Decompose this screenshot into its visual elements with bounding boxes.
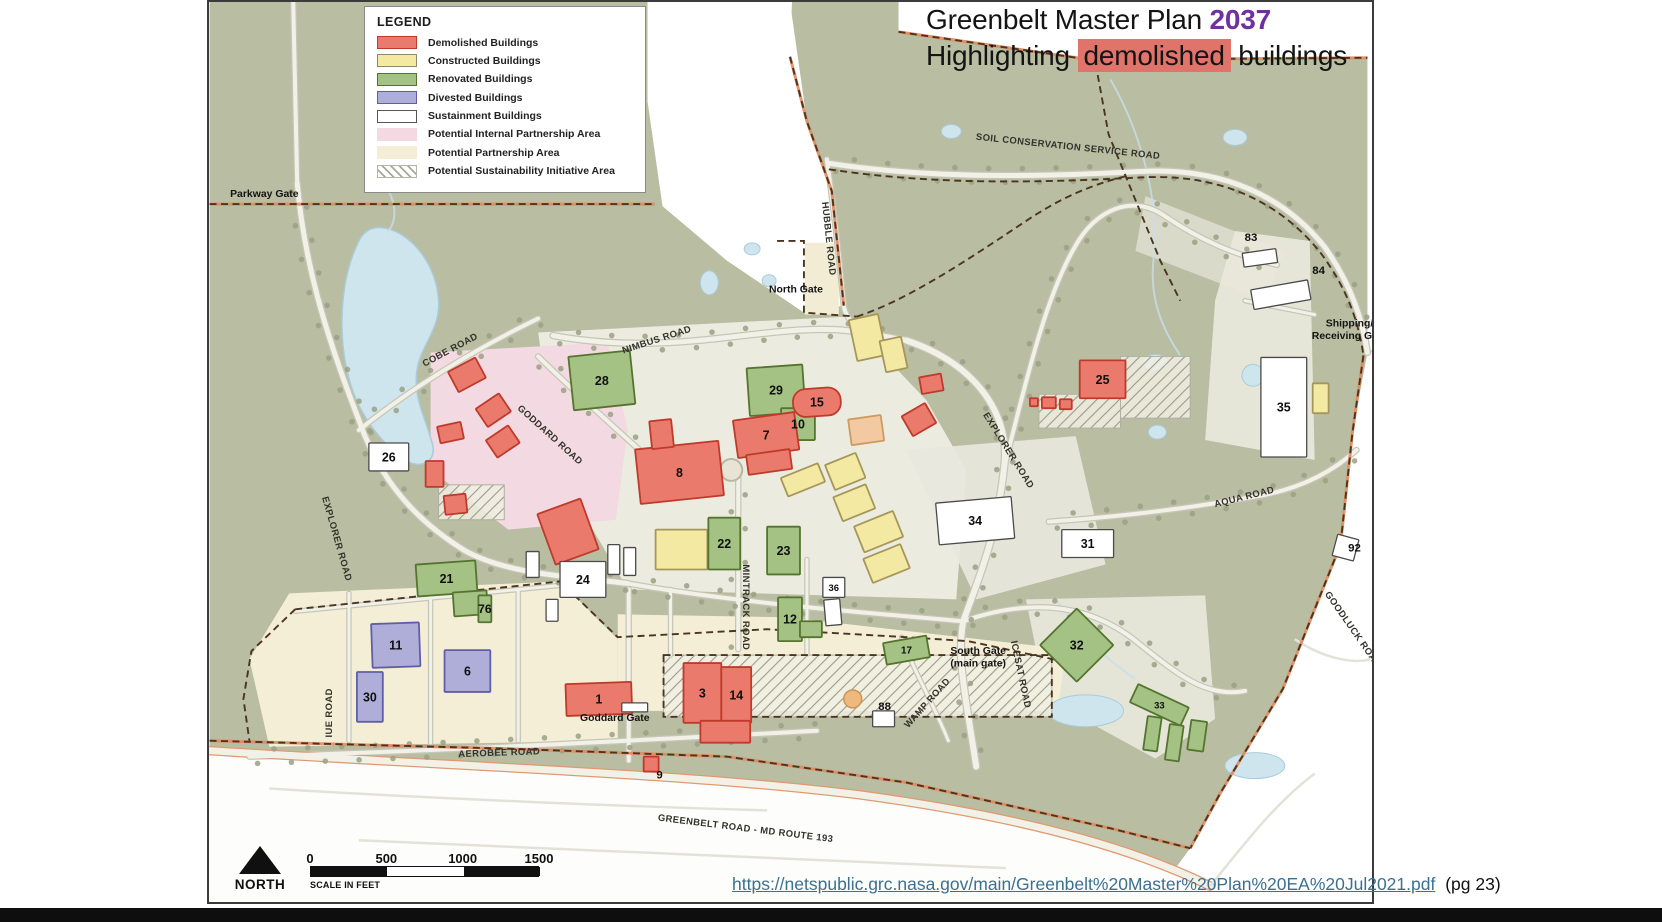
title-line-2: Highlighting demolished buildings [926, 38, 1347, 74]
building-number-24: 24 [576, 573, 590, 587]
building [1042, 397, 1056, 408]
legend-swatch [377, 128, 417, 141]
legend-item-label: Potential Internal Partnership Area [428, 128, 600, 140]
building-number-29: 29 [769, 384, 783, 398]
building-number-33: 33 [1154, 700, 1165, 711]
road-label: MINTRACK ROAD [740, 564, 751, 650]
legend-item-label: Demolished Buildings [428, 37, 538, 49]
legend-item: Demolished Buildings [377, 36, 633, 49]
building [608, 545, 620, 575]
gate-label: South Gate(main gate) [950, 646, 1006, 669]
building [824, 599, 842, 626]
pond [1148, 425, 1166, 439]
legend: LEGEND Demolished BuildingsConstructed B… [364, 6, 646, 193]
page-ref: (pg 23) [1445, 874, 1500, 894]
building-number-88: 88 [878, 701, 891, 713]
gate-label: Parkway Gate [230, 189, 299, 200]
building-number-11: 11 [389, 639, 402, 653]
road-label: IUE ROAD [324, 688, 335, 737]
legend-item-label: Potential Partnership Area [428, 147, 559, 159]
scale-tick: 1500 [525, 851, 554, 866]
building [426, 461, 444, 487]
legend-item-label: Constructed Buildings [428, 55, 541, 67]
scale-caption: SCALE IN FEET [310, 880, 550, 890]
title-year: 2037 [1210, 4, 1272, 35]
legend-item: Constructed Buildings [377, 54, 633, 67]
building-number-32: 32 [1070, 639, 1084, 653]
legend-rows: Demolished BuildingsConstructed Building… [377, 36, 633, 178]
legend-item: Potential Sustainability Initiative Area [377, 165, 633, 178]
scale-bar-box [310, 866, 539, 877]
building-number-10: 10 [791, 418, 805, 432]
potential-partnership-area [249, 581, 617, 746]
building [1313, 383, 1329, 413]
building-number-25: 25 [1096, 373, 1110, 387]
legend-item-label: Divested Buildings [428, 92, 523, 104]
pond [941, 124, 961, 138]
title-highlighted-word: demolished [1078, 39, 1231, 72]
scale-tick: 1000 [448, 851, 477, 866]
tank-circle [844, 690, 862, 708]
slide: 2628291078152513142122231217323376113062… [0, 0, 1662, 922]
legend-swatch [377, 36, 417, 49]
pond [1048, 695, 1124, 727]
building-number-14: 14 [729, 688, 743, 702]
building [444, 494, 468, 515]
building-number-36: 36 [829, 583, 840, 594]
building-number-76: 76 [478, 602, 492, 616]
title-line1-text: Greenbelt Master Plan [926, 4, 1210, 35]
building [800, 621, 822, 637]
gate-label: North Gate [769, 285, 823, 296]
building-number-9: 9 [656, 770, 662, 782]
legend-item: Renovated Buildings [377, 73, 633, 86]
pond [1223, 129, 1247, 145]
north-label: NORTH [229, 877, 291, 892]
legend-item-label: Sustainment Buildings [428, 110, 542, 122]
building [649, 419, 674, 449]
building-number-8: 8 [676, 466, 683, 480]
pond [1225, 753, 1285, 779]
pond [700, 271, 718, 295]
building-number-1: 1 [595, 692, 602, 706]
scale-segment [311, 867, 387, 876]
building-number-3: 3 [699, 686, 706, 700]
title-line-1: Greenbelt Master Plan 2037 [926, 2, 1347, 38]
legend-item: Potential Partnership Area [377, 146, 633, 159]
building [546, 599, 558, 621]
legend-item: Divested Buildings [377, 91, 633, 104]
building-number-26: 26 [382, 450, 396, 464]
building-number-17: 17 [901, 646, 912, 657]
building-number-22: 22 [717, 537, 731, 551]
legend-swatch [377, 73, 417, 86]
north-indicator: NORTH [229, 846, 291, 892]
building [700, 721, 750, 743]
building-number-35: 35 [1277, 401, 1291, 415]
building-number-15: 15 [810, 396, 824, 410]
legend-item: Potential Internal Partnership Area [377, 128, 633, 141]
scale-tick: 0 [306, 851, 313, 866]
building [622, 703, 648, 712]
building-number-12: 12 [783, 613, 797, 627]
scale-segment [464, 867, 540, 876]
building [624, 548, 636, 576]
building-number-83: 83 [1245, 232, 1258, 244]
building-number-30: 30 [363, 690, 377, 704]
building [1060, 399, 1072, 409]
gate-label: Goddard Gate [580, 713, 650, 724]
scale-bar: 050010001500 SCALE IN FEET [310, 851, 550, 890]
building-number-84: 84 [1312, 265, 1325, 277]
building [848, 415, 884, 445]
scale-ticks: 050010001500 [310, 851, 550, 866]
legend-swatch [377, 110, 417, 123]
building [526, 552, 539, 578]
scale-tick: 500 [375, 851, 397, 866]
building [873, 711, 895, 727]
legend-item: Sustainment Buildings [377, 110, 633, 123]
legend-swatch [377, 165, 417, 178]
source-citation: https://netspublic.grc.nasa.gov/main/Gre… [732, 874, 1501, 895]
building-number-7: 7 [763, 429, 770, 443]
legend-item-label: Renovated Buildings [428, 73, 532, 85]
title-line2-prefix: Highlighting [926, 40, 1078, 71]
building-number-34: 34 [968, 514, 982, 528]
building-number-23: 23 [777, 544, 791, 558]
building-number-92: 92 [1348, 543, 1361, 555]
legend-swatch [377, 91, 417, 104]
bottom-bar [0, 908, 1662, 922]
building-number-28: 28 [595, 374, 609, 388]
legend-item-label: Potential Sustainability Initiative Area [428, 165, 615, 177]
legend-title: LEGEND [377, 15, 633, 29]
legend-swatch [377, 54, 417, 67]
building-number-6: 6 [464, 665, 471, 679]
legend-swatch [377, 146, 417, 159]
building-number-21: 21 [440, 572, 454, 586]
building [1187, 720, 1207, 752]
map-panel: 2628291078152513142122231217323376113062… [207, 0, 1374, 904]
building [1030, 398, 1038, 406]
building [919, 374, 944, 394]
title-line2-suffix: buildings [1231, 40, 1347, 71]
building [437, 422, 464, 444]
north-arrow-icon [239, 846, 281, 874]
slide-title: Greenbelt Master Plan 2037 Highlighting … [926, 2, 1347, 74]
building-number-31: 31 [1081, 537, 1095, 551]
building [656, 530, 708, 570]
pond [744, 243, 760, 255]
source-link[interactable]: https://netspublic.grc.nasa.gov/main/Gre… [732, 874, 1435, 894]
